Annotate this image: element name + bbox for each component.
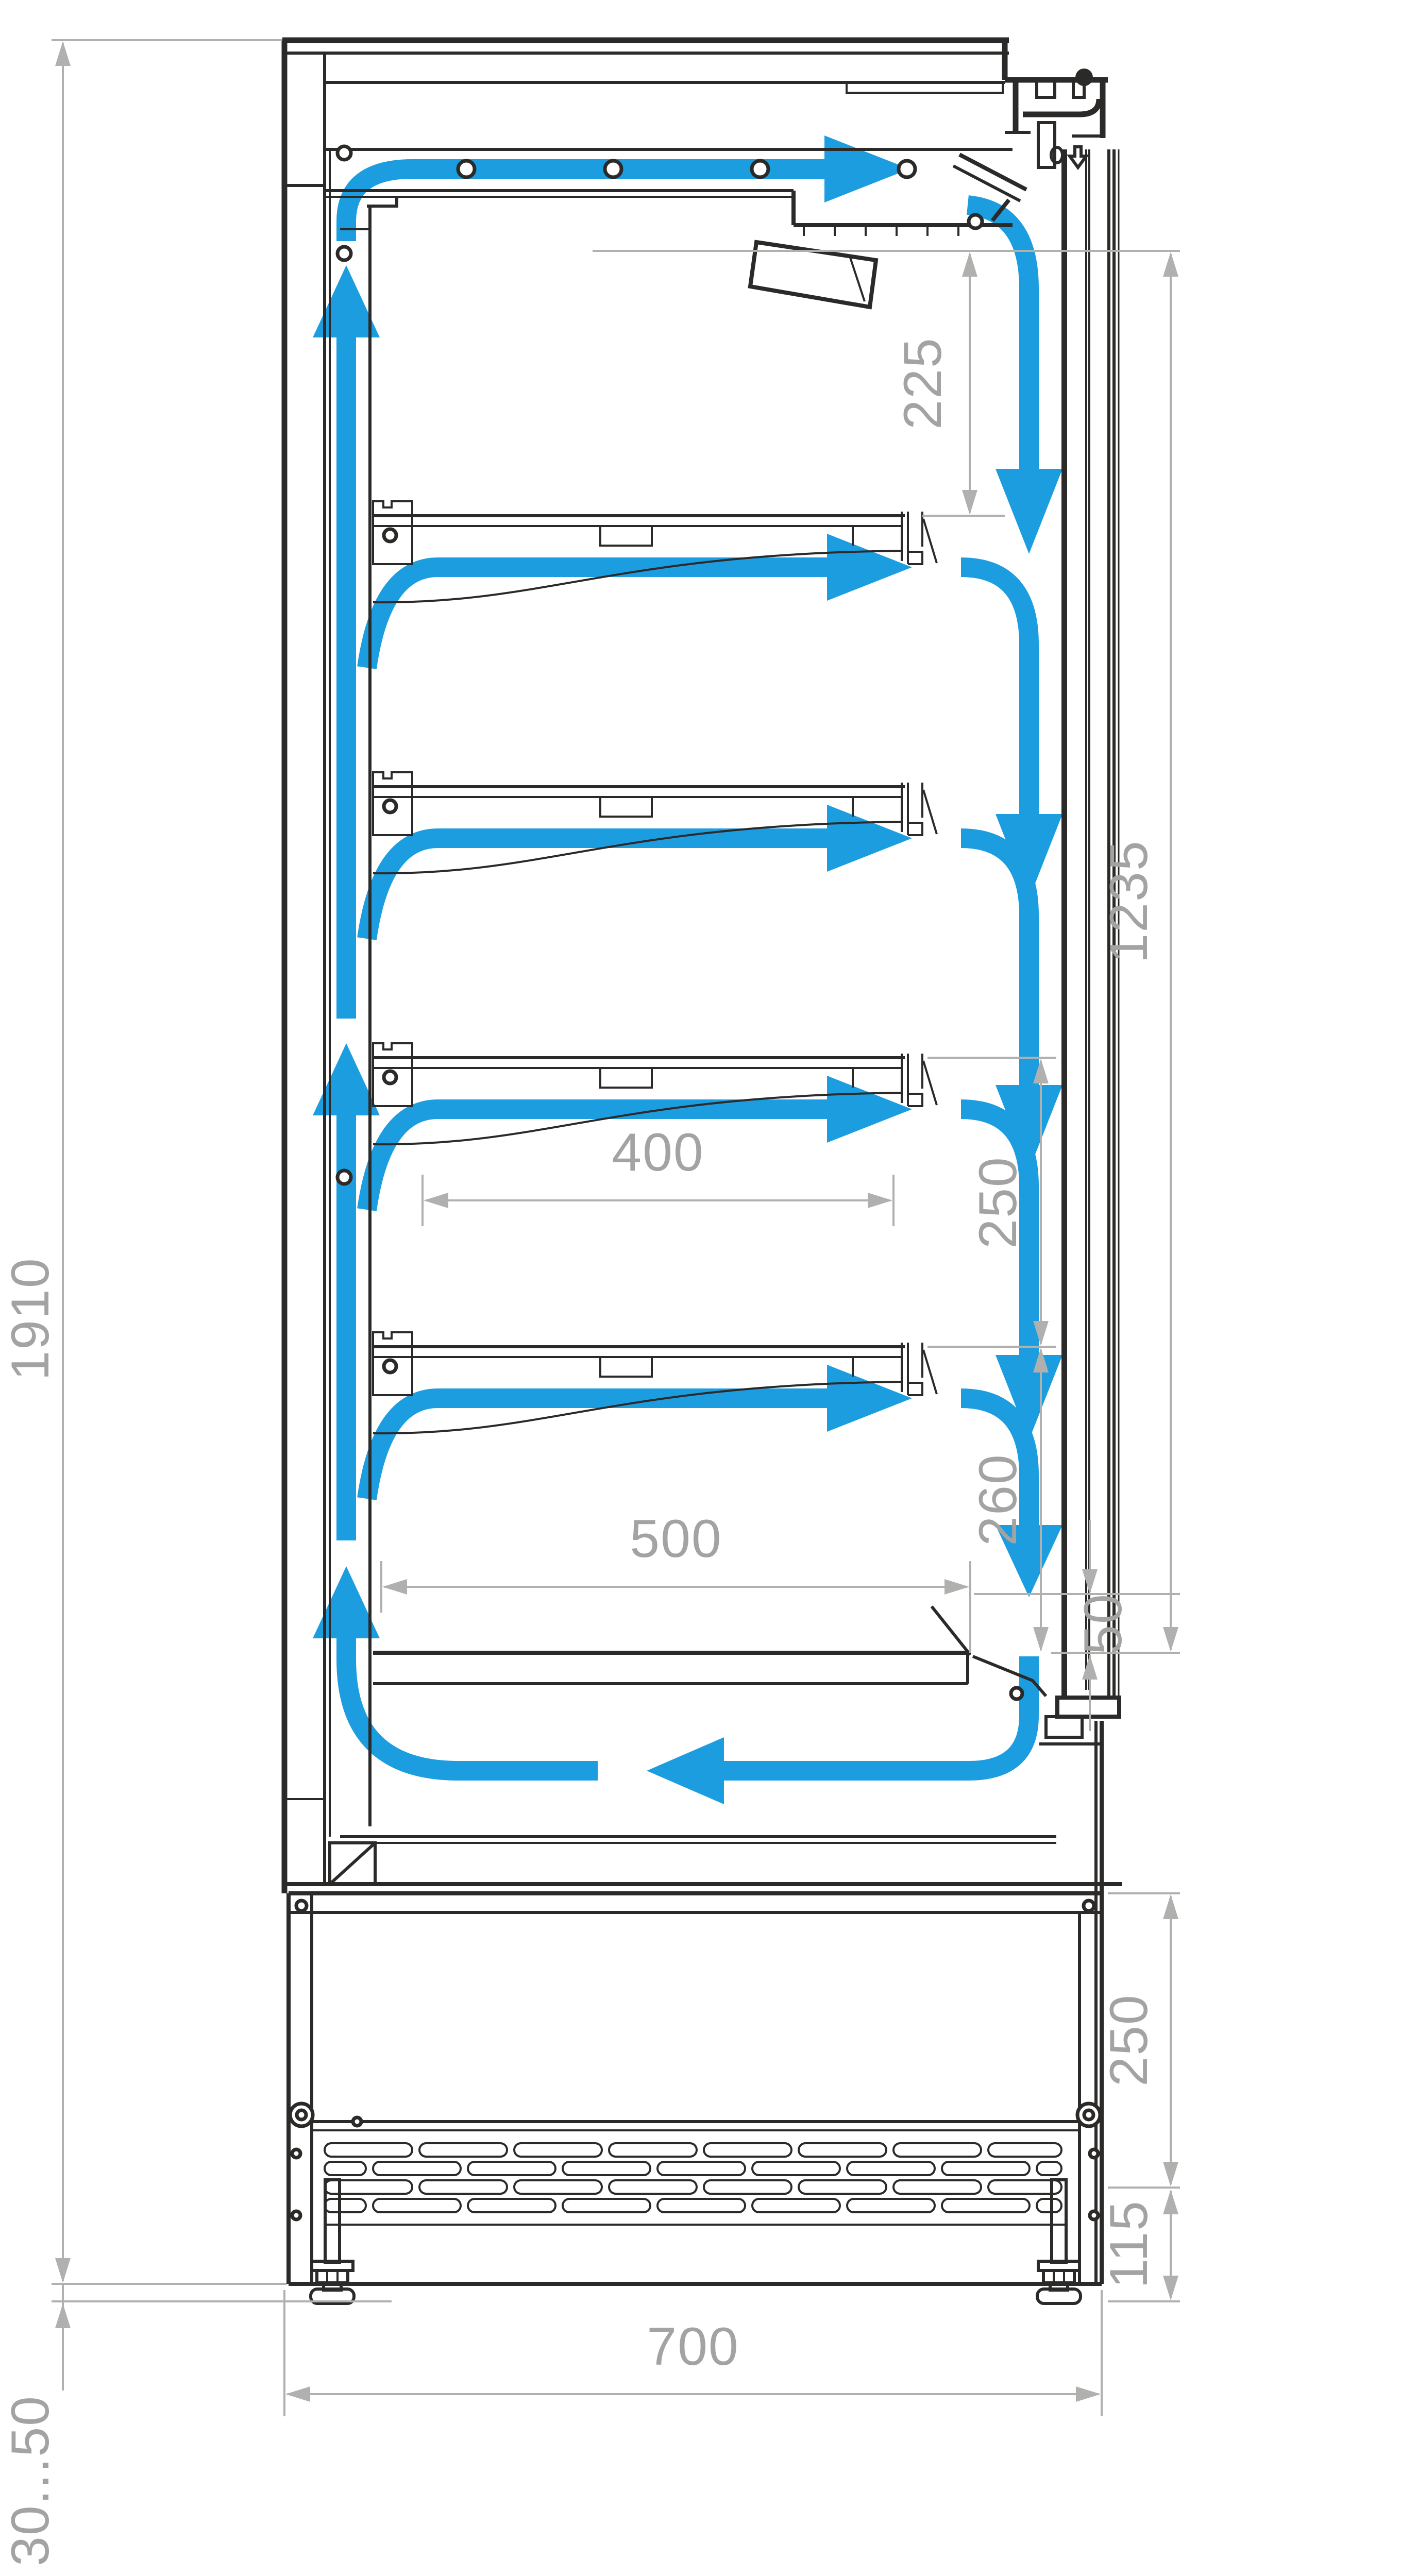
dim-label-curtain-to-deck: 50 <box>1073 1593 1133 1655</box>
airflow-shelf-arrows-icon <box>367 534 912 1499</box>
dim-label-vent-height: 115 <box>1099 2200 1159 2289</box>
dim-label-foot-adjust: 30...50 <box>1 2395 60 2566</box>
dim-deck-depth: 500 <box>381 1509 970 1653</box>
dim-label-shelf-spacing: 250 <box>968 1156 1028 1249</box>
dim-label-shelf-to-deck: 260 <box>968 1453 1028 1546</box>
dim-vent-height: 115 <box>1099 2190 1180 2301</box>
dim-overall-depth: 700 <box>284 2290 1102 2416</box>
rear-corner-gusset <box>330 1843 375 1884</box>
display-deck <box>373 1606 1119 1744</box>
dim-base-height: 250 <box>1099 1893 1180 2188</box>
dim-label-overall-height: 1910 <box>1 1257 60 1380</box>
dim-canopy-to-shelf: 225 <box>593 251 1180 516</box>
dim-shelf-depth: 400 <box>423 1123 893 1226</box>
dim-label-deck-depth: 500 <box>630 1509 722 1569</box>
vent-grille <box>325 2143 1061 2212</box>
dim-label-curtain-height: 1235 <box>1099 840 1159 963</box>
dim-label-shelf-depth: 400 <box>612 1123 704 1182</box>
airflow-curtain-icon <box>961 205 1062 1597</box>
dim-foot-adjust: 30...50 <box>1 2284 392 2566</box>
dim-label-base-height: 250 <box>1099 1994 1159 2087</box>
dim-overall-height: 1910 <box>1 40 286 2284</box>
door-hinge-top <box>1005 40 1108 167</box>
dim-label-canopy-to-shelf: 225 <box>893 337 953 430</box>
base-unit <box>289 1893 1102 2284</box>
technical-drawing-refrigerated-cabinet: 1910 30...50 700 225 1235 <box>0 0 1417 2576</box>
airflow-return-arrow-icon <box>647 1656 1029 1804</box>
fasteners <box>338 146 982 1184</box>
airflow-up-duct-icon <box>313 265 598 1771</box>
dim-label-overall-depth: 700 <box>647 2317 739 2377</box>
dim-curtain-height: 1235 <box>1099 252 1178 1652</box>
